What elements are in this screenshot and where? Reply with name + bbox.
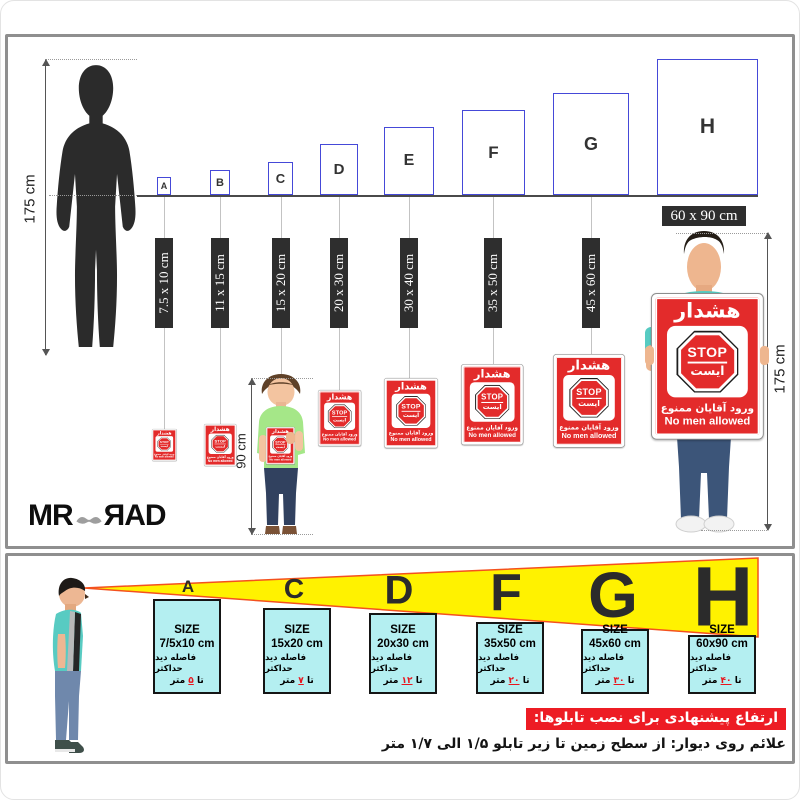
size-label-a: 7.5 x 10 cm — [155, 238, 173, 328]
sign-stop-en: STOP — [481, 393, 503, 401]
sign-stop-fa: ایست — [578, 400, 600, 408]
sign-warning-fa: هشدار — [395, 380, 427, 394]
size-label-b-text: 11 x 15 cm — [212, 254, 228, 312]
size-label-d-text: 20 x 30 cm — [331, 254, 347, 312]
size-card-f-distance: تا ۲۰ متر — [491, 675, 530, 687]
sign-stop-fa: ایست — [276, 445, 285, 448]
sign-stop-fa: ایست — [483, 404, 502, 411]
child-dimension-line — [251, 379, 252, 534]
sign-panel: هشدار STOP ایست ورود آقایان ممنوع No men… — [464, 367, 521, 443]
sign-stop-en: STOP — [576, 387, 602, 397]
stop-octagon-icon: STOP ایست — [396, 396, 426, 426]
size-box-b: B — [210, 170, 230, 195]
sign-stop-fa: ایست — [690, 365, 724, 378]
logo-mr: MR — [28, 502, 73, 530]
sign-warning-fa: هشدار — [211, 425, 230, 433]
child-dim-bottom-dotted — [251, 534, 313, 535]
viewer-figure — [45, 574, 89, 764]
size-label-b: 11 x 15 cm — [211, 238, 229, 328]
size-card-g-distance-label: فاصله دید حداکثر — [583, 653, 647, 675]
size-card-d-distance-label: فاصله دید حداکثر — [371, 653, 435, 675]
size-box-h-letter: H — [700, 115, 715, 139]
sign-panel: هشدار STOP ایست ورود آقایان ممنوع No men… — [556, 357, 622, 445]
stop-octagon-icon: STOP ایست — [158, 437, 172, 451]
size-box-c: C — [268, 162, 293, 195]
logo-rad: ЯAD — [104, 502, 166, 530]
ground-line — [137, 195, 758, 197]
size-label-g: 45 x 60 cm — [582, 238, 600, 328]
install-height-note: علائم روی دیوار: از سطح زمین تا زیر تابل… — [382, 736, 786, 752]
size-box-e-letter: E — [404, 152, 415, 170]
sign-no-entry-fa: ورود آقایان ممنوع — [661, 402, 754, 414]
size-box-a: A — [157, 177, 171, 195]
child-dim-top-dotted — [251, 378, 313, 379]
size-card-a: SIZE 7/5x10 cm فاصله دید حداکثر تا ۵ متر — [153, 599, 221, 694]
sign-stop-box: STOP ایست — [209, 433, 232, 454]
sign-warning-fa: هشدار — [674, 298, 740, 326]
holder-dimension-line — [767, 233, 768, 530]
size-label-f: 35 x 50 cm — [484, 238, 502, 328]
warning-sign-g: هشدار STOP ایست ورود آقایان ممنوع No men… — [553, 354, 625, 448]
sign-no-entry-en: No men allowed — [562, 431, 617, 440]
sign-no-entry-en: No men allowed — [269, 458, 291, 462]
size-card-a-distance: تا ۵ متر — [170, 675, 203, 687]
sign-no-entry-en: No men allowed — [468, 431, 516, 439]
size-label-d: 20 x 30 cm — [330, 238, 348, 328]
sign-no-entry-en: No men allowed — [664, 414, 750, 428]
warning-sign-h: هشدار STOP ایست ورود آقایان ممنوع No men… — [651, 293, 764, 440]
size-label-e-text: 30 x 40 cm — [401, 254, 417, 312]
sign-stop-en: STOP — [214, 439, 225, 443]
cone-letter-c: C — [284, 573, 304, 605]
sign-warning-fa: هشدار — [327, 392, 352, 403]
stop-octagon-icon: STOP ایست — [676, 331, 738, 393]
size-box-h: H — [657, 59, 758, 195]
stop-octagon-icon: STOP ایست — [328, 404, 352, 428]
install-height-heading: ارتفاع پیشنهادی برای نصب تابلوها: — [526, 708, 786, 730]
sign-stop-box: STOP ایست — [563, 375, 615, 421]
warning-sign-f: هشدار STOP ایست ورود آقایان ممنوع No men… — [461, 364, 523, 445]
size-card-h-distance: تا ۴۰ متر — [703, 675, 742, 687]
holder-dim-top-dotted — [676, 233, 767, 234]
size-card-g-title: SIZE — [602, 623, 628, 637]
stop-octagon-icon: STOP ایست — [211, 435, 229, 453]
size-card-g-value: 45x60 cm — [589, 637, 641, 651]
size-card-c-value: 15x20 cm — [271, 637, 323, 651]
sign-stop-en: STOP — [332, 410, 347, 416]
holder-dim-bottom-dotted — [701, 530, 767, 531]
sign-panel: هشدار STOP ایست ورود آقایان ممنوع No men… — [153, 430, 176, 460]
sign-warning-fa: هشدار — [474, 367, 511, 383]
sign-stop-box: STOP ایست — [667, 326, 748, 397]
sign-no-entry-en: No men allowed — [208, 459, 233, 463]
size-label-h: 60 x 90 cm — [662, 206, 746, 226]
silhouette-height-label: 175 cm — [22, 174, 39, 223]
size-card-d-value: 20x30 cm — [377, 637, 429, 651]
size-guide-infographic: 175 cm A B C D E F G H 7.5 x 10 cm 11 x … — [0, 0, 800, 800]
silhouette-dimension-line — [45, 60, 46, 355]
cone-letter-a: A — [182, 577, 194, 597]
sign-panel: هشدار STOP ایست ورود آقایان ممنوع No men… — [656, 298, 759, 435]
size-card-h: SIZE 60x90 cm فاصله دید حداکثر تا ۴۰ متر — [688, 635, 756, 694]
sign-stop-fa: ایست — [403, 412, 419, 418]
moustache-icon — [75, 514, 103, 526]
size-card-a-title: SIZE — [174, 623, 200, 637]
sign-stop-box: STOP ایست — [155, 436, 173, 452]
size-card-h-title: SIZE — [709, 623, 735, 637]
sign-stop-en: STOP — [401, 403, 420, 410]
size-box-a-letter: A — [161, 181, 168, 191]
size-card-d-distance: تا ۱۲ متر — [384, 675, 423, 687]
size-label-c-text: 15 x 20 cm — [273, 254, 289, 312]
stop-octagon-icon: STOP ایست — [569, 378, 609, 418]
holder-right-hand — [760, 346, 769, 365]
size-box-d-letter: D — [334, 161, 345, 178]
size-box-b-letter: B — [216, 177, 224, 189]
size-card-f-distance-label: فاصله دید حداکثر — [478, 653, 542, 675]
size-box-g-letter: G — [584, 134, 598, 155]
size-label-c: 15 x 20 cm — [272, 238, 290, 328]
sign-panel: هشدار STOP ایست ورود آقایان ممنوع No men… — [205, 425, 235, 464]
cone-letter-g: G — [588, 558, 638, 632]
sign-stop-box: STOP ایست — [470, 382, 515, 422]
size-card-f: SIZE 35x50 cm فاصله دید حداکثر تا ۲۰ متر — [476, 622, 544, 694]
cone-letter-d: D — [385, 569, 414, 614]
size-card-a-value: 7/5x10 cm — [160, 637, 215, 651]
size-card-c-distance-label: فاصله دید حداکثر — [265, 653, 329, 675]
holder-left-hand — [645, 346, 654, 365]
size-card-d: SIZE 20x30 cm فاصله دید حداکثر تا ۱۲ متر — [369, 613, 437, 694]
size-card-c-distance: تا ۷ متر — [280, 675, 313, 687]
size-box-f-letter: F — [488, 143, 498, 163]
sign-panel: هشدار STOP ایست ورود آقایان ممنوع No men… — [320, 392, 360, 445]
brand-logo: MR ЯAD — [28, 502, 166, 530]
size-card-g-distance: تا ۳۰ متر — [596, 675, 635, 687]
sign-no-entry-en: No men allowed — [390, 436, 431, 443]
warning-sign-b: هشدار STOP ایست ورود آقایان ممنوع No men… — [204, 424, 236, 466]
size-card-c-title: SIZE — [284, 623, 310, 637]
sign-no-entry-en: No men allowed — [155, 455, 174, 458]
sign-no-entry-en: No men allowed — [323, 436, 356, 441]
sign-stop-fa: ایست — [215, 445, 225, 449]
size-card-c: SIZE 15x20 cm فاصله دید حداکثر تا ۷ متر — [263, 608, 331, 694]
sign-stop-fa: ایست — [333, 418, 346, 423]
size-box-c-letter: C — [276, 171, 285, 186]
cone-letter-f: F — [490, 563, 522, 623]
sign-no-entry-fa: ورود آقایان ممنوع — [559, 424, 618, 432]
sign-no-entry-fa: ورود آقایان ممنوع — [466, 424, 518, 431]
child-hand — [286, 432, 295, 444]
size-card-a-distance-label: فاصله دید حداکثر — [155, 653, 219, 675]
sign-stop-en: STOP — [687, 345, 727, 360]
dim-top-dotted — [45, 59, 137, 60]
warning-sign-a: هشدار STOP ایست ورود آقایان ممنوع No men… — [152, 429, 177, 461]
sign-stop-fa: ایست — [161, 445, 168, 448]
sign-panel: هشدار STOP ایست ورود آقایان ممنوع No men… — [386, 380, 436, 446]
sign-divider — [688, 362, 727, 364]
size-box-e: E — [384, 127, 434, 195]
sign-stop-box: STOP ایست — [324, 403, 355, 430]
size-label-g-text: 45 x 60 cm — [583, 254, 599, 312]
holder-height-label: 175 cm — [772, 344, 789, 393]
size-card-d-title: SIZE — [390, 623, 416, 637]
size-box-f: F — [462, 110, 525, 195]
warning-sign-e: هشدار STOP ایست ورود آقایان ممنوع No men… — [384, 378, 438, 448]
size-box-d: D — [320, 144, 358, 195]
size-card-h-distance-label: فاصله دید حداکثر — [690, 653, 754, 675]
size-label-a-text: 7.5 x 10 cm — [156, 252, 172, 313]
size-card-f-value: 35x50 cm — [484, 637, 536, 651]
sign-warning-fa: هشدار — [568, 357, 610, 375]
size-label-e: 30 x 40 cm — [400, 238, 418, 328]
size-card-g: SIZE 45x60 cm فاصله دید حداکثر تا ۳۰ متر — [581, 629, 649, 694]
stop-octagon-icon: STOP ایست — [475, 385, 509, 419]
size-card-h-value: 60x90 cm — [696, 637, 748, 651]
size-label-f-text: 35 x 50 cm — [485, 254, 501, 312]
size-card-f-title: SIZE — [497, 623, 523, 637]
warning-sign-d: هشدار STOP ایست ورود آقایان ممنوع No men… — [318, 390, 361, 446]
size-box-g: G — [553, 93, 629, 195]
sign-stop-box: STOP ایست — [392, 394, 431, 428]
dim-ground-dotted — [49, 195, 137, 196]
adult-silhouette — [53, 56, 139, 357]
